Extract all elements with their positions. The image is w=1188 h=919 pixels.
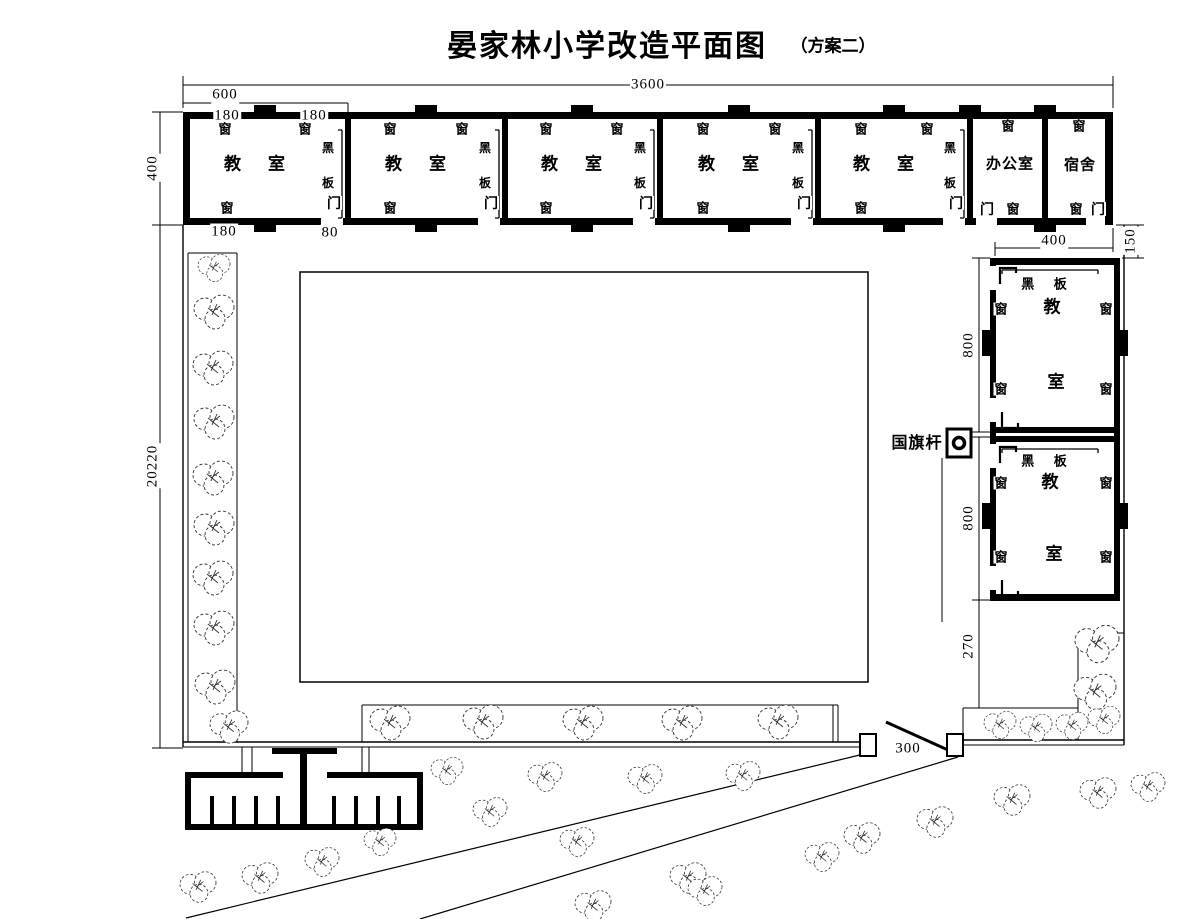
room-label-classroom-3: 教室 [540, 156, 630, 173]
room-label-dormitory: 宿舍 [1063, 158, 1097, 173]
window-label: 窗 [538, 202, 553, 215]
window-label: 窗 [695, 123, 710, 136]
window-label: 窗 [538, 123, 553, 136]
dimension-lines [152, 76, 1144, 748]
window-label: 窗 [1068, 203, 1083, 216]
floor-plan-page: 晏家林小学改造平面图 （方案二） 3600 600 180 180 400 18… [0, 0, 1188, 919]
window-label: 窗 [219, 202, 234, 215]
dim-door-width: 80 [321, 225, 340, 242]
window-label: 窗 [853, 202, 868, 215]
blackboard-label: 黑 [633, 142, 647, 154]
window-label: 窗 [297, 123, 312, 136]
dim-site-height: 20220 [145, 444, 162, 489]
window-label: 窗 [217, 123, 232, 136]
flagpole-symbol [947, 429, 971, 457]
window-label: 窗 [1098, 477, 1113, 490]
blackboard-label: 板 [791, 177, 805, 189]
window-label: 窗 [1000, 120, 1015, 133]
window-label: 窗 [382, 123, 397, 136]
window-label: 窗 [993, 477, 1008, 490]
dim-gate-width: 300 [894, 741, 922, 758]
room-label-classroom-1: 教室 [223, 156, 313, 173]
window-label: 窗 [1098, 551, 1113, 564]
window-label: 窗 [454, 123, 469, 136]
blackboard-label: 板 [321, 177, 335, 189]
trees [180, 254, 1165, 919]
blackboard-label: 黑 板 [1020, 455, 1076, 468]
room-label-classroom-5: 教室 [852, 156, 942, 173]
window-label: 窗 [695, 202, 710, 215]
door-label: 门 [979, 202, 995, 216]
door-label: 门 [948, 196, 964, 210]
floor-plan-drawing [0, 0, 1188, 919]
dim-right-offset: 270 [961, 632, 978, 660]
dim-building-depth: 400 [145, 154, 162, 182]
room-label-right-1b: 室 [1047, 374, 1066, 391]
playground [300, 272, 868, 682]
door-label: 门 [638, 196, 654, 210]
room-label-classroom-4: 教室 [697, 156, 787, 173]
window-label: 窗 [382, 202, 397, 215]
door-label: 门 [796, 196, 812, 210]
dim-bottom-window: 180 [210, 224, 238, 241]
blackboard-label: 黑 [943, 142, 957, 154]
window-label: 窗 [1005, 203, 1020, 216]
dim-right-gap: 150 [1123, 227, 1140, 255]
window-label: 窗 [1098, 383, 1113, 396]
dim-total-width: 3600 [630, 77, 666, 94]
room-label-right-2b: 室 [1045, 546, 1064, 563]
window-label: 窗 [609, 123, 624, 136]
room-label-classroom-2: 教室 [384, 156, 474, 173]
site-boundary [183, 225, 1124, 747]
window-label: 窗 [993, 383, 1008, 396]
page-title: 晏家林小学改造平面图 [446, 32, 768, 62]
blackboard-label: 黑 [321, 142, 335, 154]
window-label: 窗 [993, 303, 1008, 316]
dim-right-room1: 800 [961, 331, 978, 359]
room-label-office: 办公室 [985, 157, 1035, 172]
blackboard-label: 板 [943, 177, 957, 189]
window-label: 窗 [1098, 303, 1113, 316]
flagpole-label: 国旗杆 [890, 436, 943, 452]
door-label: 门 [1090, 202, 1106, 216]
room-label-right-1a: 教 [1043, 299, 1062, 316]
dim-right-block-width: 400 [1040, 233, 1068, 250]
window-label: 窗 [993, 551, 1008, 564]
page-title-variant: （方案二） [790, 38, 877, 55]
blackboard-label: 板 [478, 177, 492, 189]
window-label: 窗 [853, 123, 868, 136]
dim-right-room2: 800 [961, 504, 978, 532]
window-label: 窗 [1071, 120, 1086, 133]
dim-room-width: 600 [211, 87, 239, 104]
room-label-right-2a: 教 [1041, 474, 1060, 491]
blackboard-label: 黑 [791, 142, 805, 154]
blackboard-label: 黑 [478, 142, 492, 154]
blackboard-lines [338, 130, 1098, 453]
blackboard-label: 黑 板 [1020, 278, 1076, 291]
door-label: 门 [326, 196, 342, 210]
window-label: 窗 [767, 123, 782, 136]
blackboard-label: 板 [633, 177, 647, 189]
door-label: 门 [483, 196, 499, 210]
window-label: 窗 [919, 123, 934, 136]
